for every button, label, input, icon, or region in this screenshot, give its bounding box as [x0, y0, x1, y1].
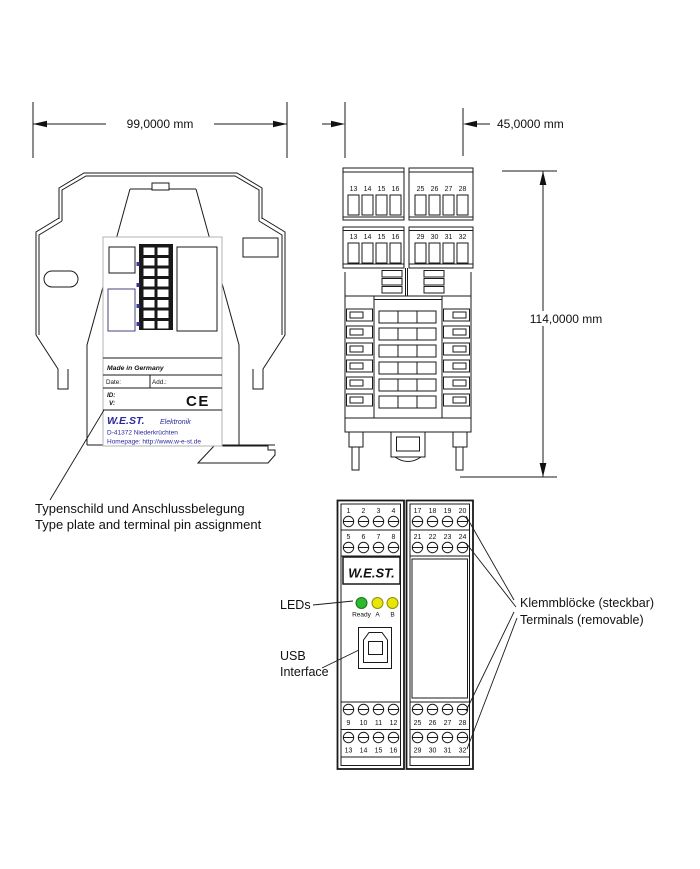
terminal-number: 5 — [347, 534, 351, 541]
cooling-fin — [444, 343, 470, 355]
led-ready-label: Ready — [352, 612, 372, 619]
terminal-number: 20 — [459, 508, 467, 515]
arrow-down-icon — [540, 463, 547, 477]
terminal-number: 15 — [378, 186, 386, 193]
vent-bar — [379, 396, 436, 408]
cooling-fin — [444, 377, 470, 389]
foot-block — [349, 432, 363, 447]
terminal-number: 17 — [414, 508, 422, 515]
plug-tab — [424, 279, 444, 286]
screw-terminal — [343, 732, 353, 742]
screw-terminal — [373, 516, 383, 526]
screw-terminal — [388, 732, 398, 742]
type-plate: Made in Germany Date: Add.: ID: V: CE W.… — [103, 237, 222, 446]
pin-connector-grid — [137, 244, 174, 330]
terminal-number: 26 — [431, 186, 439, 193]
terminal-number: 28 — [459, 720, 467, 727]
type-plate-leader — [50, 410, 104, 500]
terminal-number: 25 — [417, 186, 425, 193]
arrow-right-icon — [331, 121, 345, 127]
terminals-label-de: Klemmblöcke (steckbar) — [520, 596, 654, 610]
leds-label: LEDs — [280, 598, 311, 612]
screw-terminal — [427, 732, 437, 742]
side-slot-rect — [243, 238, 278, 257]
terminal-number: 3 — [377, 508, 381, 515]
terminal-number: 19 — [444, 508, 452, 515]
terminal-number: 12 — [390, 720, 398, 727]
cooling-fin — [347, 343, 373, 355]
terminal-opening — [390, 195, 401, 215]
terminal-number: 16 — [392, 186, 400, 193]
led-ready — [356, 598, 367, 609]
brand-text: W.E.ST. — [107, 415, 145, 427]
vent-bar — [379, 328, 436, 340]
arrow-up-icon — [540, 171, 547, 185]
plug-tab — [424, 271, 444, 278]
screw-terminal — [412, 542, 422, 552]
front-view: 1 2 3 4 5 6 7 8 17 18 19 20 21 22 23 24 — [338, 501, 474, 770]
type-plate-label-en: Type plate and terminal pin assignment — [35, 517, 262, 532]
terminal-block-top-right: 17 18 19 20 21 22 23 24 — [410, 504, 470, 556]
arrow-left-icon — [463, 121, 477, 127]
type-plate-label-de: Typenschild und Anschlussbelegung — [35, 501, 245, 516]
terminal-opening — [457, 195, 468, 215]
vent-bar — [379, 379, 436, 391]
led-a — [372, 598, 383, 609]
foot-plate — [345, 418, 471, 432]
terminal-number: 4 — [392, 508, 396, 515]
screw-terminal — [442, 704, 452, 714]
terminal-opening — [362, 243, 373, 263]
screw-terminal — [412, 704, 422, 714]
foot-pin — [456, 447, 463, 470]
terminals-leader — [467, 618, 517, 749]
terminal-number: 9 — [347, 720, 351, 727]
terminal-number: 32 — [459, 748, 467, 755]
cooling-fin — [347, 377, 373, 389]
dimension-height-text: 114,0000 mm — [530, 312, 603, 326]
terminal-number: 25 — [414, 720, 422, 727]
homepage-text: Homepage: http://www.w-e-st.de — [107, 439, 201, 446]
terminal-number: 11 — [375, 720, 382, 727]
terminal-number: 15 — [378, 234, 386, 241]
terminal-number: 13 — [350, 186, 358, 193]
made-in-text: Made in Germany — [107, 365, 165, 372]
date-label: Date: — [106, 379, 121, 386]
cooling-fin — [444, 326, 470, 338]
led-a-label: A — [375, 612, 380, 619]
led-b — [387, 598, 398, 609]
leds-leader — [313, 601, 353, 605]
vent-bar — [379, 345, 436, 357]
screw-terminal — [343, 704, 353, 714]
screw-terminal — [412, 516, 422, 526]
cooling-fin — [444, 394, 470, 406]
terminal-number: 13 — [345, 748, 353, 755]
terminal-number: 8 — [392, 534, 396, 541]
terminal-number: 29 — [414, 748, 422, 755]
terminals-label-en: Terminals (removable) — [520, 613, 644, 627]
top-view: 13 14 15 16 25 26 27 28 13 14 15 16 29 3… — [343, 168, 473, 470]
terminal-number: 15 — [375, 748, 383, 755]
foot-pin — [352, 447, 359, 470]
cooling-fin — [347, 394, 373, 406]
arrow-right-icon — [273, 121, 287, 127]
terminal-number: 6 — [362, 534, 366, 541]
screw-terminal — [358, 516, 368, 526]
terminal-number: 27 — [445, 186, 453, 193]
terminal-opening — [390, 243, 401, 263]
terminal-opening — [443, 243, 454, 263]
side-view: Made in Germany Date: Add.: ID: V: CE W.… — [36, 173, 285, 463]
v-label: V: — [109, 400, 115, 407]
dimension-width: 99,0000 mm — [33, 102, 287, 158]
dimension-depth-text: 45,0000 mm — [497, 117, 564, 131]
terminal-block-top-left: 1 2 3 4 5 6 7 8 — [341, 504, 401, 556]
plug-tab — [382, 271, 402, 278]
screw-terminal — [373, 704, 383, 714]
terminal-number: 1 — [347, 508, 351, 515]
terminal-opening — [429, 243, 440, 263]
terminal-opening — [376, 243, 387, 263]
screw-terminal — [388, 542, 398, 552]
plug-tab — [424, 287, 444, 294]
terminal-number: 30 — [431, 234, 439, 241]
id-label: ID: — [107, 392, 115, 399]
dimension-depth: 45,0000 mm — [322, 102, 564, 158]
terminal-number: 23 — [444, 534, 452, 541]
terminal-number: 30 — [429, 748, 437, 755]
terminal-number: 7 — [377, 534, 381, 541]
screw-terminal — [427, 704, 437, 714]
terminal-number: 14 — [364, 186, 372, 193]
screw-terminal — [358, 542, 368, 552]
left-wall-outline — [36, 218, 68, 389]
terminal-opening — [348, 243, 359, 263]
screw-terminal — [373, 542, 383, 552]
terminal-number: 14 — [364, 234, 372, 241]
terminal-block-bottom-right: 25 26 27 28 29 30 31 32 — [410, 702, 470, 757]
cooling-fin — [444, 360, 470, 372]
screw-terminal — [373, 732, 383, 742]
terminal-number: 14 — [360, 748, 368, 755]
add-label: Add.: — [152, 379, 167, 386]
screw-terminal — [442, 516, 452, 526]
screw-terminal — [343, 516, 353, 526]
terminal-number: 16 — [392, 234, 400, 241]
screw-terminal — [412, 732, 422, 742]
screw-terminal — [427, 516, 437, 526]
screw-terminal — [457, 516, 467, 526]
plug-tab — [382, 279, 402, 286]
led-indicators: Ready A B — [352, 598, 398, 619]
terminal-number: 32 — [459, 234, 467, 241]
dimension-width-text: 99,0000 mm — [127, 117, 194, 131]
terminal-opening — [457, 243, 468, 263]
terminal-number: 26 — [429, 720, 437, 727]
screw-terminal — [343, 542, 353, 552]
screw-terminal — [358, 704, 368, 714]
plug-tab — [382, 287, 402, 294]
terminal-block-bottom-left: 9 10 11 12 13 14 15 16 — [341, 702, 401, 757]
screw-terminal — [388, 704, 398, 714]
screw-terminal — [457, 704, 467, 714]
front-right-blank-panel — [412, 559, 468, 698]
top-tab — [152, 183, 169, 190]
brand-suffix-text: Elektronik — [160, 419, 191, 426]
led-b-label: B — [390, 612, 394, 619]
vent-bar — [379, 311, 436, 323]
front-logo-text: W.E.ST. — [348, 566, 394, 581]
screw-terminal — [442, 542, 452, 552]
terminal-number: 13 — [350, 234, 358, 241]
screw-terminal — [442, 732, 452, 742]
ce-mark-icon: CE — [186, 393, 210, 410]
terminal-number: 29 — [417, 234, 425, 241]
vent-bar — [379, 362, 436, 374]
terminal-number: 16 — [390, 748, 398, 755]
terminal-opening — [415, 195, 426, 215]
screw-terminal — [358, 732, 368, 742]
terminal-number: 10 — [360, 720, 368, 727]
cooling-fin — [444, 309, 470, 321]
cooling-fin — [347, 360, 373, 372]
terminal-opening — [362, 195, 373, 215]
terminal-number: 27 — [444, 720, 452, 727]
rail-latch-inner — [397, 437, 420, 451]
technical-drawing-page: 99,0000 mm 45,0000 mm 114,0000 mm — [0, 0, 700, 869]
terminal-opening — [415, 243, 426, 263]
terminal-number: 21 — [414, 534, 422, 541]
screw-terminal — [427, 542, 437, 552]
terminal-number: 18 — [429, 508, 437, 515]
terminal-number: 31 — [445, 234, 453, 241]
cooling-fin — [347, 309, 373, 321]
usb-label-line1: USB — [280, 649, 306, 663]
cooling-fin — [347, 326, 373, 338]
usb-b-shape — [364, 633, 388, 663]
terminal-opening — [376, 195, 387, 215]
terminal-number: 31 — [444, 748, 452, 755]
usb-inner — [369, 642, 383, 655]
dimension-height: 114,0000 mm — [460, 171, 626, 477]
usb-connector-icon — [359, 628, 392, 669]
terminal-number: 22 — [429, 534, 437, 541]
terminal-opening — [348, 195, 359, 215]
address-text: D-41372 Niederkrüchten — [107, 430, 178, 437]
side-slot-pill — [44, 271, 78, 287]
rail-latch-curve — [395, 457, 421, 462]
screw-terminal — [388, 516, 398, 526]
drawing: 99,0000 mm 45,0000 mm 114,0000 mm — [0, 0, 700, 869]
terminal-opening — [429, 195, 440, 215]
terminal-number: 2 — [362, 508, 366, 515]
arrow-left-icon — [33, 121, 47, 127]
terminal-opening — [443, 195, 454, 215]
annotations: Typenschild und Anschlussbelegung Type p… — [35, 501, 654, 679]
top-cap-outline — [59, 173, 262, 219]
terminal-number: 28 — [459, 186, 467, 193]
foot-block — [453, 432, 467, 447]
terminal-number: 24 — [459, 534, 467, 541]
rail-latch — [198, 446, 275, 463]
usb-label-line2: Interface — [280, 665, 329, 679]
screw-terminal — [457, 732, 467, 742]
